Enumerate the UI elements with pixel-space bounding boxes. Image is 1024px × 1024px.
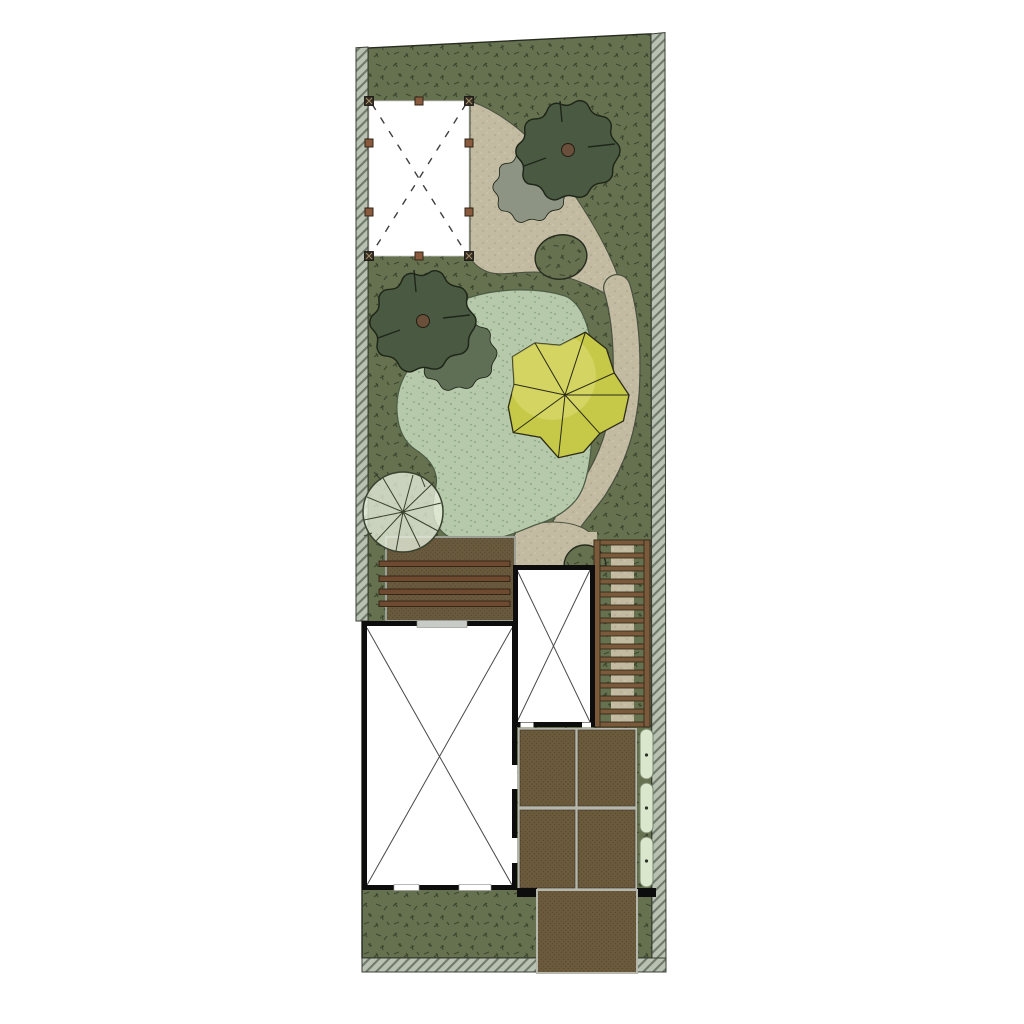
- tree-light: [363, 472, 443, 552]
- stone-dot-2: [645, 806, 648, 809]
- pergola: [365, 97, 474, 261]
- step-rail-right: [644, 540, 650, 727]
- main-room-bottom-window-2: [459, 885, 491, 891]
- tree-trunk: [562, 144, 575, 157]
- garden-steps: [594, 540, 650, 727]
- deck-step-2: [379, 576, 510, 582]
- main-room-bottom-window-1: [394, 885, 419, 891]
- pergola-roof: [369, 101, 469, 256]
- house-annex-room: [513, 565, 595, 728]
- paved-patio: [517, 728, 656, 973]
- deck-step-4: [379, 601, 510, 607]
- patio-tile-4: [578, 810, 635, 888]
- garden-plan-drawing: [0, 0, 1024, 1024]
- deck-step-3: [379, 589, 510, 595]
- main-room-door-1: [512, 765, 518, 789]
- tree-trunk: [417, 315, 430, 328]
- house-main-room: [362, 621, 518, 891]
- annex-door-1: [521, 723, 534, 728]
- patio-tile-3: [520, 810, 575, 888]
- bottom-fence-strip-left: [362, 958, 537, 972]
- driveway-walk: [537, 890, 637, 973]
- step-risers: [594, 540, 650, 727]
- patio-tile-1: [520, 730, 575, 806]
- main-room-top-window: [417, 621, 467, 628]
- main-room-door-2: [512, 838, 518, 863]
- patio-tile-2: [578, 730, 635, 806]
- stone-dot-3: [645, 859, 648, 862]
- garden-plan-canvas: [0, 0, 1024, 1024]
- patio-wall-segment-left: [517, 888, 537, 897]
- stepping-stones: [640, 729, 653, 887]
- stone-dot-1: [645, 753, 648, 756]
- annex-door-2: [582, 723, 591, 728]
- deck-step-1: [379, 561, 510, 567]
- bottom-fence-strip-right: [637, 958, 666, 972]
- patio-wall-segment-right: [637, 888, 656, 897]
